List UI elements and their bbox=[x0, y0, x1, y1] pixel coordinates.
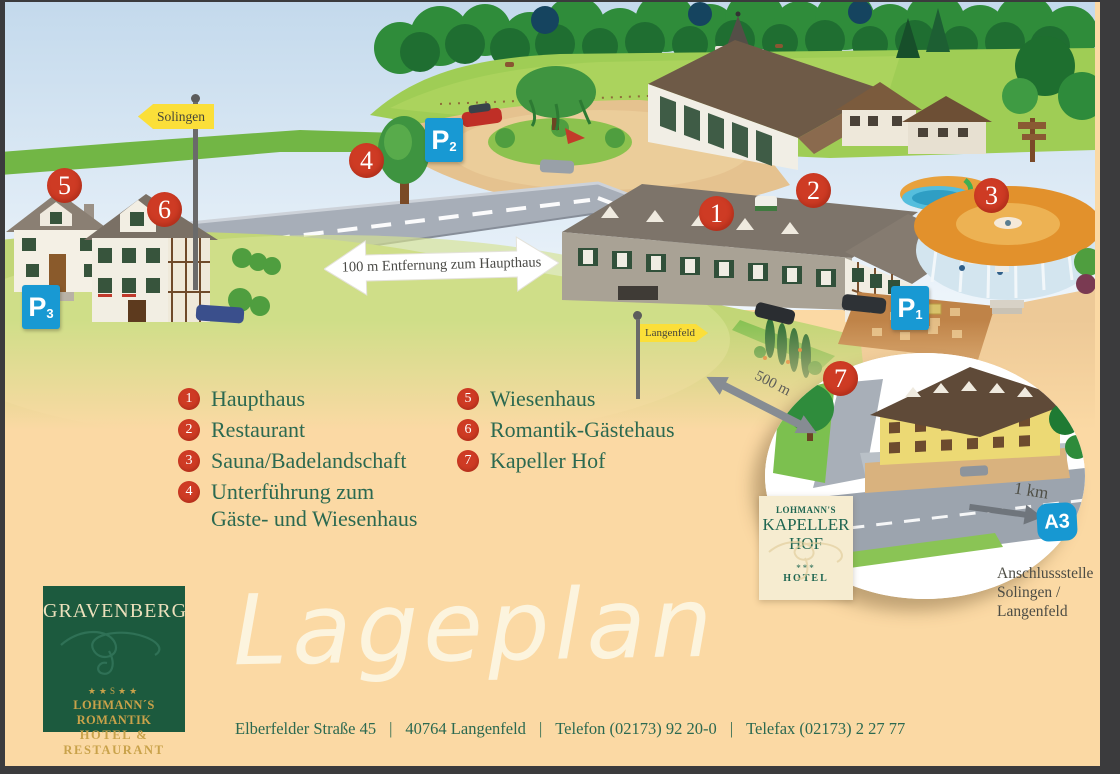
motorway-a3-label: A3 bbox=[1044, 510, 1071, 534]
map-marker-2: 2 bbox=[796, 173, 831, 208]
parking-sign-p1: P 1 bbox=[891, 286, 929, 330]
logo-stars: ★★S★★ bbox=[43, 686, 185, 697]
kapeller-hof-sign: LOHMANN'S KAPELLER HOF *** HOTEL bbox=[759, 496, 853, 600]
logo-subtitle1: LOHMANN´S ROMANTIK bbox=[43, 698, 185, 728]
legend-num-3: 3 bbox=[178, 450, 200, 472]
legend-num-5: 5 bbox=[457, 388, 479, 410]
lageplan-page: Solingen Langenfeld 100 m Entfernung zum… bbox=[5, 2, 1100, 766]
legend-label-unterfuehrung: Unterführung zum bbox=[211, 479, 374, 505]
legend-num-1: 1 bbox=[178, 388, 200, 410]
footer-separator: | bbox=[539, 719, 542, 738]
map-marker-6: 6 bbox=[147, 192, 182, 227]
legend-item-restaurant: 2 Restaurant bbox=[178, 417, 305, 443]
legend-label-unterfuehrung-line2: Gäste- und Wiesenhaus bbox=[211, 506, 417, 532]
parking-sign-p2: P 2 bbox=[425, 118, 463, 162]
map-marker-5: 5 bbox=[47, 168, 82, 203]
parking-p1-letter: P bbox=[897, 295, 915, 322]
kapeller-sign-brand: LOHMANN'S bbox=[759, 505, 853, 515]
legend-num-6: 6 bbox=[457, 419, 479, 441]
legend-label-sauna: Sauna/Badelandschaft bbox=[211, 448, 407, 474]
logo-flourish-icon bbox=[55, 623, 173, 679]
flourish-icon bbox=[765, 536, 847, 586]
motorway-a3-badge: A3 bbox=[1036, 502, 1078, 542]
legend-item-wiesenhaus: 5 Wiesenhaus bbox=[457, 386, 595, 412]
page-title: Lageplan bbox=[232, 566, 718, 687]
legend-label-gaestehaus: Romantik-Gästehaus bbox=[490, 417, 675, 443]
legend-item-gaestehaus: 6 Romantik-Gästehaus bbox=[457, 417, 675, 443]
map-marker-4: 4 bbox=[349, 143, 384, 178]
footer-street: Elberfelder Straße 45 bbox=[235, 719, 376, 738]
map-marker-3: 3 bbox=[974, 178, 1009, 213]
solingen-signpost-pole bbox=[193, 102, 198, 290]
junction-line1: Anschlussstelle bbox=[997, 564, 1093, 583]
parking-p1-index: 1 bbox=[915, 307, 922, 322]
map-marker-7: 7 bbox=[823, 361, 858, 396]
map-marker-1: 1 bbox=[699, 196, 734, 231]
footer-fax: Telefax (02173) 2 27 77 bbox=[746, 719, 905, 738]
legend-num-4: 4 bbox=[178, 481, 200, 503]
parking-sign-p3: P 3 bbox=[22, 285, 60, 329]
junction-line3: Langenfeld bbox=[997, 602, 1093, 621]
viewer-background: Solingen Langenfeld 100 m Entfernung zum… bbox=[0, 0, 1120, 774]
parking-p3-letter: P bbox=[28, 294, 46, 321]
sign-langenfeld: Langenfeld bbox=[640, 324, 708, 342]
junction-note: Anschlussstelle Solingen / Langenfeld bbox=[997, 564, 1093, 621]
legend-num-7: 7 bbox=[457, 450, 479, 472]
legend-item-unterfuehrung: 4 Unterführung zum bbox=[178, 479, 374, 505]
logo-hotel-name: GRAVENBERG bbox=[43, 600, 185, 623]
sign-solingen: Solingen bbox=[138, 104, 214, 129]
playground bbox=[488, 118, 632, 166]
legend-item-kapeller-hof: 7 Kapeller Hof bbox=[457, 448, 605, 474]
legend-label-kapeller-hof: Kapeller Hof bbox=[490, 448, 605, 474]
footer-separator: | bbox=[389, 719, 392, 738]
parking-p2-index: 2 bbox=[449, 139, 456, 154]
sign-langenfeld-label: Langenfeld bbox=[645, 327, 695, 339]
footer-phone: Telefon (02173) 92 20-0 bbox=[555, 719, 717, 738]
legend-item-sauna: 3 Sauna/Badelandschaft bbox=[178, 448, 407, 474]
footer-city: 40764 Langenfeld bbox=[405, 719, 526, 738]
gravenberg-logo: GRAVENBERG ★★S★★ LOHMANN´S ROMANTIK HOTE… bbox=[43, 586, 185, 732]
legend-num-2: 2 bbox=[178, 419, 200, 441]
legend-label-restaurant: Restaurant bbox=[211, 417, 305, 443]
kapeller-sign-name1: KAPELLER bbox=[759, 515, 853, 534]
legend-label-wiesenhaus: Wiesenhaus bbox=[490, 386, 595, 412]
legend-item-haupthaus: 1 Haupthaus bbox=[178, 386, 305, 412]
footer-address: Elberfelder Straße 45|40764 Langenfeld|T… bbox=[235, 719, 905, 739]
junction-line2: Solingen / bbox=[997, 583, 1093, 602]
legend-label-haupthaus: Haupthaus bbox=[211, 386, 305, 412]
logo-subtitle2: HOTEL & RESTAURANT bbox=[43, 728, 185, 758]
sign-solingen-label: Solingen bbox=[157, 109, 205, 125]
distance-arrow-haupthaus: 100 m Entfernung zum Haupthaus bbox=[323, 233, 559, 299]
langenfeld-signpost-pole bbox=[636, 319, 640, 399]
footer-separator: | bbox=[730, 719, 733, 738]
parking-p3-index: 3 bbox=[46, 306, 53, 321]
parking-p2-letter: P bbox=[431, 127, 449, 154]
